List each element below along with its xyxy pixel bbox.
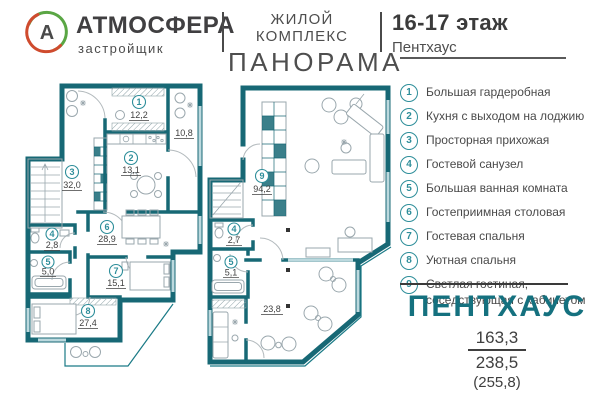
legend-item-1: 1 Большая гардеробная bbox=[400, 84, 596, 102]
legend-number: 5 bbox=[400, 180, 418, 198]
room-label-4: 4 2,8 bbox=[44, 228, 60, 251]
legend-label: Большая гардеробная bbox=[426, 84, 551, 101]
header-divider-right bbox=[380, 12, 382, 52]
legend-label: Просторная прихожая bbox=[426, 132, 549, 149]
area-full: (255,8) bbox=[398, 374, 596, 391]
penthouse-summary: ПЕНТХАУС 163,3 238,5 (255,8) bbox=[398, 290, 596, 391]
room-label-4: 4 2,7 bbox=[226, 223, 242, 246]
floor-plan-17: 9 94,2 4 2,7 5 5,1 23,8 bbox=[198, 72, 398, 394]
brand-name: АТМОСФЕРА bbox=[76, 14, 235, 38]
legend-item-5: 5 Большая ванная комната bbox=[400, 180, 596, 198]
svg-text:5: 5 bbox=[45, 257, 50, 267]
developer-logo: А АТМОСФЕРА застройщик bbox=[24, 9, 235, 56]
header-divider-left bbox=[222, 12, 224, 52]
legend-item-8: 8 Уютная спальня bbox=[400, 252, 596, 270]
svg-text:2,8: 2,8 bbox=[46, 240, 59, 250]
wardrobe-hatch bbox=[112, 123, 164, 131]
terrace-area-label: 23,8 bbox=[261, 304, 283, 315]
legend-number: 7 bbox=[400, 228, 418, 246]
svg-text:28,9: 28,9 bbox=[98, 234, 116, 244]
room-label-5: 5 5,0 bbox=[40, 256, 56, 277]
complex-label: ЖИЛОЙ КОМПЛЕКС bbox=[228, 11, 376, 45]
complex-title: ЖИЛОЙ КОМПЛЕКС ПАНОРАМА bbox=[228, 11, 376, 78]
loggia-area-label: 10,8 bbox=[174, 128, 194, 139]
wardrobe-hatch bbox=[70, 298, 116, 305]
legend-label: Гостевая спальня bbox=[426, 228, 525, 245]
floorplan-flyer: { "header": { "logo_letter": "А", "brand… bbox=[0, 0, 600, 400]
legend-item-7: 7 Гостевая спальня bbox=[400, 228, 596, 246]
room-label-1: 1 12,2 bbox=[129, 96, 149, 121]
legend-label: Гостеприимная столовая bbox=[426, 204, 565, 221]
wardrobe-hatch bbox=[212, 300, 246, 308]
floor-type: Пентхаус bbox=[392, 39, 508, 56]
room-label-8: 8 27,4 bbox=[78, 305, 98, 329]
legend-label: Гостевой санузел bbox=[426, 156, 523, 173]
legend-label: Кухня с выходом на лоджию bbox=[426, 108, 584, 125]
summary-title: ПЕНТХАУС bbox=[398, 290, 596, 324]
wardrobe-hatch bbox=[112, 88, 164, 96]
room-label-7: 7 15,1 bbox=[106, 265, 126, 289]
floor-number: 16-17 этаж bbox=[392, 10, 508, 36]
legend-number: 3 bbox=[400, 132, 418, 150]
area-living: 163,3 bbox=[468, 328, 527, 351]
svg-text:8: 8 bbox=[85, 306, 90, 316]
room-label-2: 2 13,1 bbox=[121, 152, 141, 176]
svg-text:5: 5 bbox=[228, 257, 233, 267]
legend-number: 2 bbox=[400, 108, 418, 126]
svg-text:5,0: 5,0 bbox=[42, 267, 55, 277]
svg-text:5,1: 5,1 bbox=[225, 268, 238, 278]
legend-divider bbox=[400, 283, 568, 285]
atmosphere-logo-icon: А bbox=[24, 9, 70, 55]
svg-text:27,4: 27,4 bbox=[79, 318, 97, 328]
svg-text:2,7: 2,7 bbox=[228, 235, 241, 245]
room-label-3: 3 32,0 bbox=[62, 166, 82, 191]
legend-item-4: 4 Гостевой санузел bbox=[400, 156, 596, 174]
legend-item-6: 6 Гостеприимная столовая bbox=[400, 204, 596, 222]
legend-number: 1 bbox=[400, 84, 418, 102]
svg-text:6: 6 bbox=[104, 222, 109, 232]
svg-text:9: 9 bbox=[259, 171, 264, 181]
svg-text:94,2: 94,2 bbox=[253, 184, 271, 194]
floor-plan-16: 1 12,2 10,8 2 13,1 3 32,0 4 2,8 5 5,0 6 … bbox=[8, 80, 204, 392]
svg-text:3: 3 bbox=[69, 167, 74, 177]
logo-letter: А bbox=[40, 22, 54, 44]
legend-label: Большая ванная комната bbox=[426, 180, 568, 197]
area-total: 238,5 bbox=[398, 353, 596, 373]
stairs bbox=[28, 159, 62, 228]
legend-number: 6 bbox=[400, 204, 418, 222]
room-label-5: 5 5,1 bbox=[223, 256, 239, 278]
svg-text:23,8: 23,8 bbox=[263, 304, 281, 314]
legend-number: 4 bbox=[400, 156, 418, 174]
legend-label: Уютная спальня bbox=[426, 252, 516, 269]
legend-number: 8 bbox=[400, 252, 418, 270]
svg-text:15,1: 15,1 bbox=[107, 278, 125, 288]
room-label-6: 6 28,9 bbox=[97, 221, 117, 245]
stairs bbox=[210, 180, 243, 218]
room-legend: 1 Большая гардеробная 2 Кухня с выходом … bbox=[400, 84, 596, 314]
floor-info: 16-17 этаж Пентхаус bbox=[392, 10, 508, 56]
svg-text:10,8: 10,8 bbox=[175, 128, 193, 138]
svg-text:4: 4 bbox=[49, 229, 54, 239]
brand-subtitle: застройщик bbox=[78, 41, 235, 56]
shelf-unit bbox=[262, 102, 286, 216]
legend-item-3: 3 Просторная прихожая bbox=[400, 132, 596, 150]
summary-areas: 163,3 238,5 (255,8) bbox=[398, 328, 596, 391]
svg-text:7: 7 bbox=[113, 266, 118, 276]
svg-text:13,1: 13,1 bbox=[122, 165, 140, 175]
svg-text:1: 1 bbox=[136, 97, 141, 107]
svg-text:12,2: 12,2 bbox=[130, 110, 148, 120]
svg-text:2: 2 bbox=[128, 153, 133, 163]
header-underline bbox=[400, 57, 566, 59]
svg-text:32,0: 32,0 bbox=[63, 180, 81, 190]
svg-text:4: 4 bbox=[231, 224, 236, 234]
legend-item-2: 2 Кухня с выходом на лоджию bbox=[400, 108, 596, 126]
